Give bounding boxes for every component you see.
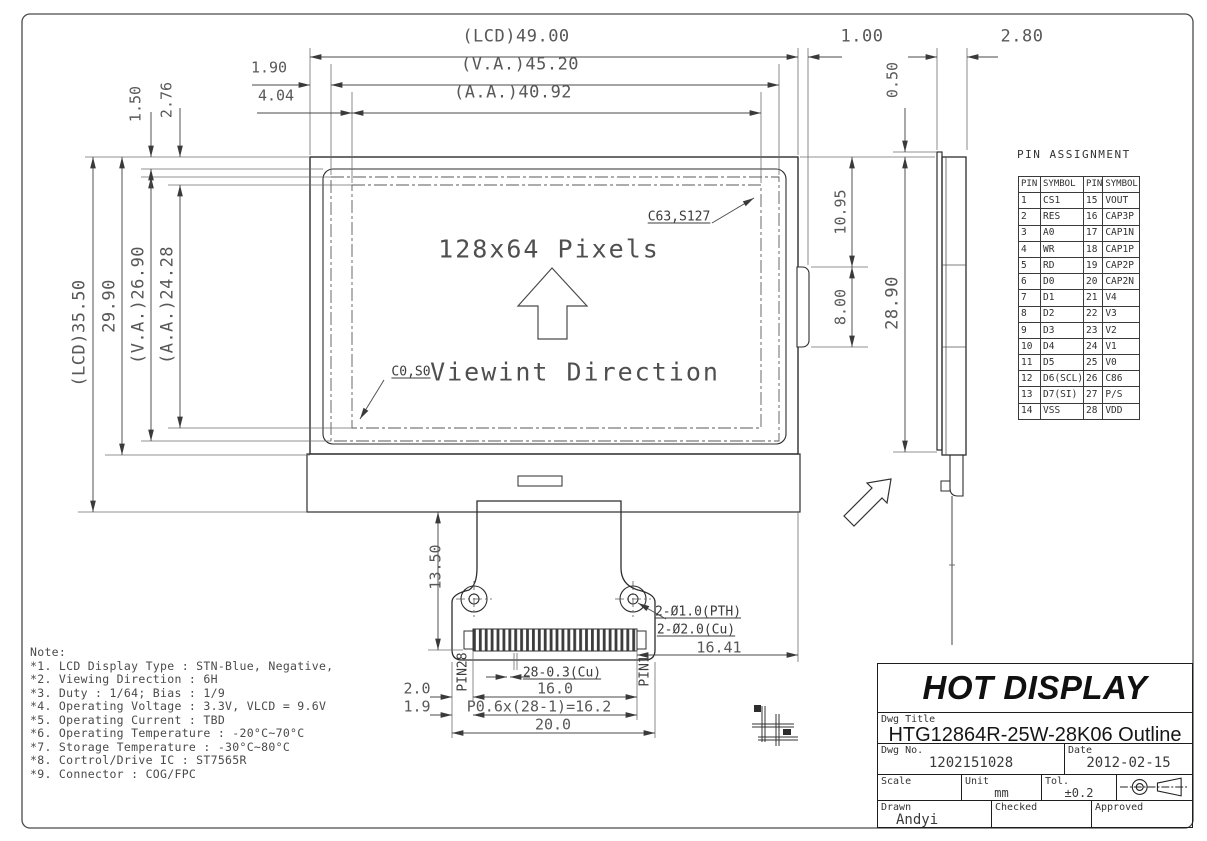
viewing-area-borders [331, 177, 779, 441]
dim-lcd-width: (LCD)49.00 [462, 29, 569, 46]
dim-pitch: P0.6x(28-1)=16.2 [467, 700, 612, 715]
table-row: 12D6(SCL)26C86 [1019, 371, 1140, 387]
dim-va-width: (V.A.)45.20 [461, 57, 579, 74]
viewing-direction-arrow [844, 479, 891, 526]
dim-total-height: 28.90 [885, 276, 902, 330]
pin-number: 9 [1019, 322, 1041, 338]
pin-symbol: VDD [1103, 403, 1140, 419]
pin-symbol: D6(SCL) [1041, 371, 1084, 387]
approved-cell: Approved [1091, 801, 1192, 827]
pin-symbol: V1 [1103, 338, 1140, 354]
pin28-label: PIN28 [457, 652, 470, 691]
dim-va-height: (V.A.)26.90 [131, 246, 148, 364]
col-header: SYMBOL [1103, 177, 1140, 193]
pin-number: 23 [1084, 322, 1103, 338]
dim-polarizer-offset: 0.50 [886, 62, 901, 98]
pin-number: 15 [1084, 193, 1103, 209]
col-header: SYMBOL [1041, 177, 1084, 193]
scale-cell: Scale [878, 775, 961, 800]
pin-symbol: CAP1N [1103, 225, 1140, 241]
side-bump [797, 267, 809, 347]
dim-pad-width: 28-0.3(Cu) [523, 667, 601, 680]
dim-pad-span: 16.0 [537, 682, 573, 697]
pin-number: 16 [1084, 209, 1103, 225]
pin-symbol: CAP1P [1103, 241, 1140, 257]
scale-row: Scale Unit mm Tol. ±0.2 [878, 774, 1192, 800]
pin-symbol: D3 [1041, 322, 1084, 338]
dim-aa-height: (A.A.)24.28 [160, 246, 177, 364]
pin-symbol: P/S [1103, 387, 1140, 403]
table-row: 10D424V1 [1019, 338, 1140, 354]
hole-centerlines [456, 581, 651, 617]
table-row: 13D7(SI)27P/S [1019, 387, 1140, 403]
note-line: *5. Operating Current : TBD [30, 714, 333, 728]
note-line: *7. Storage Temperature : -30°C~80°C [30, 741, 333, 755]
pin-symbol: VSS [1041, 403, 1084, 419]
pin-symbol: CS1 [1041, 193, 1084, 209]
pin1-label: PIN1 [639, 655, 652, 686]
table-row: 8D222V3 [1019, 306, 1140, 322]
title-block: HOT DISPLAY Dwg Title HTG12864R-25W-28K0… [877, 663, 1193, 828]
pin-number: 4 [1019, 241, 1041, 257]
tol-value: ±0.2 [1042, 787, 1116, 799]
table-row: 1CS115VOUT [1019, 193, 1140, 209]
drawing-sheet: (LCD)49.00 (V.A.)45.20 (A.A.)40.92 1.90 … [0, 0, 1207, 841]
pin-number: 5 [1019, 257, 1041, 273]
pin-number: 24 [1084, 338, 1103, 354]
dim-fpc-width: 20.0 [535, 718, 571, 733]
pin-symbol: V2 [1103, 322, 1140, 338]
corner-leader-tr [712, 198, 754, 223]
note-line: *1. LCD Display Type : STN-Blue, Negativ… [30, 660, 333, 674]
note-line: *9. Connector : COG/FPC [30, 768, 333, 782]
dim-top-offset: 1.50 [129, 86, 144, 122]
pin-number: 22 [1084, 306, 1103, 322]
pin-number: 28 [1084, 403, 1103, 419]
approved-label: Approved [1092, 801, 1192, 813]
pin-number: 21 [1084, 290, 1103, 306]
note-line: *6. Operating Temperature : -20°C~70°C [30, 727, 333, 741]
projection-symbol-icon [1118, 775, 1191, 799]
pin-number: 1 [1019, 193, 1041, 209]
drawn-cell: Drawn Andyi [878, 801, 991, 827]
pin-number: 27 [1084, 387, 1103, 403]
dim-aa-offset: 4.04 [258, 89, 294, 104]
pin-number: 26 [1084, 371, 1103, 387]
col-header: PIN [1084, 177, 1103, 193]
corner-label-bl: C0,S0 [391, 366, 430, 379]
note-line: *2. Viewing Direction : 6H [30, 673, 333, 687]
hole-cu-label: 2-Ø2.0(Cu) [657, 624, 735, 637]
pin-number: 13 [1019, 387, 1041, 403]
corner-leader-bl [360, 380, 384, 419]
table-row: 7D121V4 [1019, 290, 1140, 306]
dim-pin1-to-edge: 16.41 [696, 641, 741, 656]
pin-number: 20 [1084, 274, 1103, 290]
note-line: *3. Duty : 1/64; Bias : 1/9 [30, 687, 333, 701]
projection-cell [1116, 775, 1192, 800]
date-value: 2012-02-15 [1065, 756, 1192, 770]
table-row: 6D020CAP2N [1019, 274, 1140, 290]
pin-symbol: CAP3P [1103, 209, 1140, 225]
pin-symbol: V0 [1103, 355, 1140, 371]
side-view [937, 152, 966, 645]
pin-symbol: D1 [1041, 290, 1084, 306]
dim-bump-height: 8.00 [834, 289, 849, 325]
pin-symbol: D2 [1041, 306, 1084, 322]
company-name: HOT DISPLAY [878, 664, 1192, 712]
table-row: 9D323V2 [1019, 322, 1140, 338]
note-line: *8. Cortrol/Drive IC : ST7565R [30, 754, 333, 768]
table-row: 3A017CAP1N [1019, 225, 1140, 241]
pin-number: 19 [1084, 257, 1103, 273]
dwg-no-row: Dwg No. 1202151028 Date 2012-02-15 [878, 743, 1192, 774]
pin-symbol: D7(SI) [1041, 387, 1084, 403]
table-row: 14VSS28VDD [1019, 403, 1140, 419]
dim-margin-bottom: 1.9 [403, 700, 430, 715]
date-cell: Date 2012-02-15 [1064, 744, 1192, 774]
dim-tail-length: 13.50 [429, 544, 444, 589]
notes-block: Note: *1. LCD Display Type : STN-Blue, N… [30, 646, 333, 781]
pin-number: 10 [1019, 338, 1041, 354]
dim-upper-right: 10.95 [834, 189, 849, 234]
table-header-row: PIN SYMBOL PIN SYMBOL [1019, 177, 1140, 193]
dwg-no-value: 1202151028 [878, 756, 1064, 770]
scale-label: Scale [878, 775, 961, 787]
dim-edge-offset: 1.90 [251, 61, 287, 76]
checked-cell: Checked [991, 801, 1091, 827]
dwg-title-row: Dwg Title HTG12864R-25W-28K06 Outline [878, 712, 1192, 743]
pin-number: 2 [1019, 209, 1041, 225]
table-row: 4WR18CAP1P [1019, 241, 1140, 257]
dim-bump-width: 1.00 [841, 29, 884, 46]
pin-symbol: V4 [1103, 290, 1140, 306]
dim-lcd-height: (LCD)35.50 [72, 279, 89, 386]
pin-pads [473, 629, 637, 651]
pin-symbol: A0 [1041, 225, 1084, 241]
tol-cell: Tol. ±0.2 [1041, 775, 1116, 800]
pin-number: 17 [1084, 225, 1103, 241]
table-row: 11D525V0 [1019, 355, 1140, 371]
pin-symbol: D0 [1041, 274, 1084, 290]
pin-number: 6 [1019, 274, 1041, 290]
pin-symbol: RD [1041, 257, 1084, 273]
checked-label: Checked [992, 801, 1091, 813]
pin-number: 11 [1019, 355, 1041, 371]
pin-assignment-title: PIN ASSIGNMENT [1017, 148, 1131, 161]
pin-number: 3 [1019, 225, 1041, 241]
col-header: PIN [1019, 177, 1041, 193]
unit-cell: Unit mm [961, 775, 1041, 800]
pin-symbol: V3 [1103, 306, 1140, 322]
pin-symbol: C86 [1103, 371, 1140, 387]
pin-symbol: CAP2N [1103, 274, 1140, 290]
drawn-value: Andyi [878, 813, 991, 827]
unit-value: mm [962, 787, 1041, 799]
pin-assignment-table: PIN SYMBOL PIN SYMBOL 1CS115VOUT 2RES16C… [1018, 176, 1140, 420]
pin-number: 12 [1019, 371, 1041, 387]
dim-aa-top-offset: 2.76 [160, 82, 175, 118]
bezel [323, 169, 786, 444]
pixels-label: 128x64 Pixels [438, 237, 660, 262]
pin-symbol: D5 [1041, 355, 1084, 371]
pin-symbol: WR [1041, 241, 1084, 257]
table-row: 5RD19CAP2P [1019, 257, 1140, 273]
table-row: 2RES16CAP3P [1019, 209, 1140, 225]
pin-symbol: D4 [1041, 338, 1084, 354]
pin-number: 8 [1019, 306, 1041, 322]
dwg-no-cell: Dwg No. 1202151028 [878, 744, 1064, 774]
signatures-row: Drawn Andyi Checked Approved [878, 800, 1192, 827]
corner-label-tr: C63,S127 [648, 211, 711, 224]
pin-number: 18 [1084, 241, 1103, 257]
note-line: *4. Operating Voltage : 3.3V, VLCD = 9.6… [30, 700, 333, 714]
pin-symbol: VOUT [1103, 193, 1140, 209]
dim-body-height: 29.90 [102, 279, 119, 333]
viewing-direction-label: Viewint Direction [430, 360, 720, 385]
pin-symbol: CAP2P [1103, 257, 1140, 273]
dim-margin-top: 2.0 [403, 682, 430, 697]
pin-number: 25 [1084, 355, 1103, 371]
pin-symbol: RES [1041, 209, 1084, 225]
hole-pth-label: 2-Ø1.0(PTH) [655, 606, 741, 619]
dim-side-thickness: 2.80 [1001, 29, 1044, 46]
pad-detail-inset [752, 705, 798, 746]
pin-number: 7 [1019, 290, 1041, 306]
pin-number: 14 [1019, 403, 1041, 419]
dim-aa-width: (A.A.)40.92 [454, 85, 572, 102]
up-arrow [518, 268, 587, 339]
notes-title: Note: [30, 646, 333, 660]
